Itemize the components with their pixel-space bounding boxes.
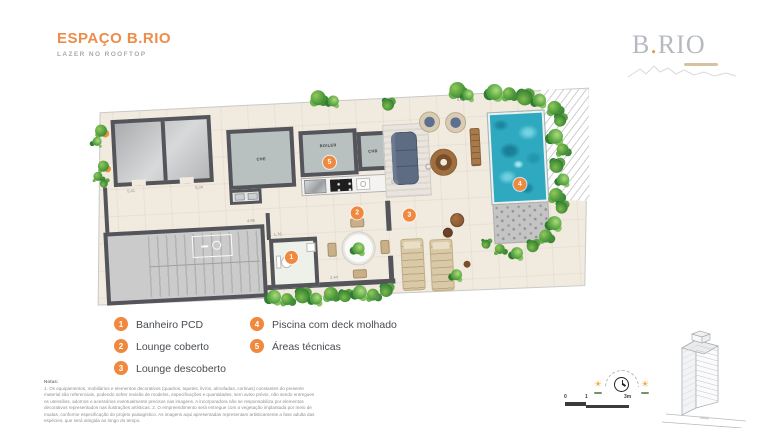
lounger-pillow bbox=[432, 242, 449, 250]
che-antechamber bbox=[229, 188, 262, 205]
room-chb-label: CHB bbox=[368, 148, 378, 153]
legend-badge-3: 3 bbox=[114, 361, 128, 375]
sun-lounger bbox=[429, 238, 455, 291]
wooden-bench bbox=[469, 128, 481, 166]
scale-tick-1: 1 bbox=[585, 394, 588, 400]
skylight-circle bbox=[212, 241, 221, 250]
dimension-label: 5,41 bbox=[127, 188, 135, 193]
room-che-label: CHE bbox=[256, 156, 266, 161]
dining-chair bbox=[380, 240, 390, 254]
page: ESPAÇO B.RIO LAZER NO ROOFTOP B.RIO CHE bbox=[0, 0, 768, 432]
scale-segment bbox=[586, 405, 629, 409]
clock-hour-hand bbox=[622, 383, 626, 387]
stair-flight bbox=[149, 262, 261, 298]
sun-label-mark bbox=[641, 392, 649, 394]
dimension-label: 5,34 bbox=[195, 184, 203, 189]
dimension-label: 4,96 bbox=[247, 218, 255, 223]
building-illustration bbox=[660, 320, 752, 428]
dimension-label: 5,36 bbox=[391, 179, 399, 184]
sofa bbox=[391, 131, 420, 185]
stairwell bbox=[103, 224, 268, 305]
skylight-icon bbox=[192, 234, 233, 258]
legend-badge-1: 1 bbox=[114, 317, 128, 331]
room-boiler-label: BOILER bbox=[320, 142, 337, 148]
legend-badge-5: 5 bbox=[250, 339, 264, 353]
sink-icon bbox=[356, 178, 371, 191]
scale-tick-3m: 3m bbox=[624, 394, 631, 400]
legend-badge-2: 2 bbox=[114, 339, 128, 353]
sink-basin bbox=[360, 181, 366, 187]
cooktop-icon bbox=[330, 179, 353, 192]
elevator-shafts bbox=[111, 115, 214, 187]
notes: Notas: 1. Os equipamentos, mobiliários e… bbox=[44, 379, 318, 425]
legend-label-lounge-coberto: Lounge coberto bbox=[136, 341, 209, 353]
elevator-divider-wall bbox=[161, 121, 168, 180]
legend-badge-4: 4 bbox=[250, 317, 264, 331]
room-che: CHE bbox=[226, 127, 296, 190]
sun-lounger bbox=[400, 238, 426, 291]
scale-bar: 0 1 3m bbox=[564, 394, 636, 412]
sun-icon: ☀ bbox=[594, 380, 602, 389]
legend-label-areas-tecnicas: Áreas técnicas bbox=[272, 341, 341, 353]
skylight-dash bbox=[201, 245, 208, 247]
dimension-label: 5,45 bbox=[457, 97, 465, 102]
elevator-door bbox=[180, 177, 194, 184]
legend-label-lounge-descoberto: Lounge descoberto bbox=[136, 363, 226, 375]
room-boiler: BOILER bbox=[298, 128, 358, 177]
locker-box bbox=[248, 193, 258, 201]
elevator-door bbox=[132, 179, 146, 186]
dimension-label: 1,76 bbox=[274, 231, 282, 236]
dining-chair bbox=[350, 218, 364, 228]
lounger-pillow bbox=[403, 241, 420, 249]
legend-label-piscina: Piscina com deck molhado bbox=[272, 319, 397, 331]
sun-icon: ☀ bbox=[641, 380, 649, 389]
legend-label-banheiro-pcd: Banheiro PCD bbox=[136, 319, 203, 331]
clock-icon bbox=[614, 377, 629, 392]
scale-tick-0: 0 bbox=[564, 394, 567, 400]
dimension-label: 4,62 bbox=[371, 294, 379, 299]
scale-segment bbox=[565, 402, 586, 406]
washbasin-icon bbox=[306, 243, 315, 252]
locker-box bbox=[235, 193, 245, 201]
dining-chair bbox=[353, 269, 367, 279]
dimension-label: 2,44 bbox=[330, 274, 338, 279]
steel-cabinet-icon bbox=[304, 179, 327, 194]
dining-chair bbox=[327, 243, 337, 257]
